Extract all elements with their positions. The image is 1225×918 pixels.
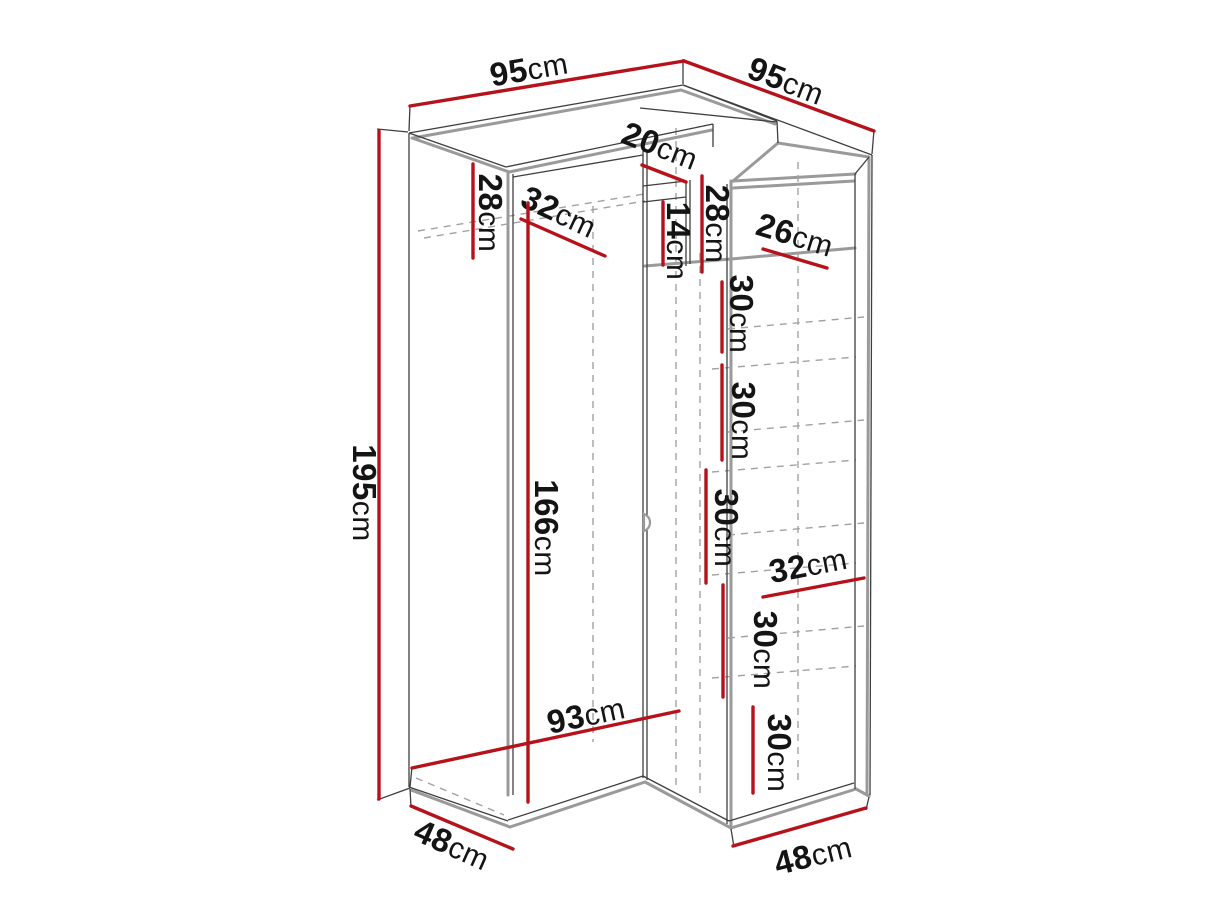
panel-edge xyxy=(778,143,869,157)
dimension-line-front-bottom-width xyxy=(412,711,679,768)
dimension-unit: cm xyxy=(525,47,571,87)
outline-edge xyxy=(643,181,686,186)
hidden-edge xyxy=(712,666,856,678)
dimension-label-front-bottom-width: 93cm xyxy=(544,688,629,741)
wardrobe-dimension-diagram: 95cm95cm195cm28cm32cm20cm14cm28cm26cm30c… xyxy=(0,0,1225,918)
diagram-canvas: 95cm95cm195cm28cm32cm20cm14cm28cm26cm30c… xyxy=(0,0,1225,918)
dimension-unit: cm xyxy=(808,831,856,873)
door-handle xyxy=(644,514,650,531)
dimension-label-door-height: 166cm xyxy=(528,479,565,577)
outline-edge xyxy=(855,157,869,174)
hidden-edge xyxy=(728,523,864,535)
dimension-label-total-height: 195cm xyxy=(346,444,383,542)
dimension-unit: cm xyxy=(804,543,851,583)
panel-edge xyxy=(645,782,731,828)
panel-edge xyxy=(733,181,854,188)
dimension-label-right-top-compartment-height: 28cm xyxy=(699,185,736,264)
dimension-unit: cm xyxy=(346,501,379,542)
dimension-label-left-depth: 48cm xyxy=(409,812,496,878)
outline-edge xyxy=(410,789,411,807)
panel-edge xyxy=(731,789,856,828)
outline-edge xyxy=(870,155,872,795)
dimension-value: 30 xyxy=(761,714,798,752)
panel-edge xyxy=(510,782,645,827)
panel-edge xyxy=(733,174,855,181)
outline-edge xyxy=(377,788,410,800)
outline-edge xyxy=(640,108,777,122)
dimension-label-right-depth: 48cm xyxy=(770,827,855,882)
dimension-annotations: 95cm95cm195cm28cm32cm20cm14cm28cm26cm30c… xyxy=(346,43,874,882)
dimension-unit: cm xyxy=(581,692,628,733)
panel-edge xyxy=(733,143,778,181)
dimension-unit: cm xyxy=(660,239,693,280)
dimension-unit: cm xyxy=(472,211,505,252)
outline-edge xyxy=(872,130,874,154)
dimension-label-corner-niche-height: 14cm xyxy=(660,202,697,281)
dimension-value: 30 xyxy=(708,489,745,527)
outline-edge xyxy=(410,767,412,787)
dimension-unit: cm xyxy=(528,536,561,577)
dimension-label-corner-front-width: 20cm xyxy=(617,114,704,177)
dimension-label-shelf-spacing-5: 30cm xyxy=(761,714,798,793)
outline-edge xyxy=(777,121,778,143)
dimension-label-top-width-right: 95cm xyxy=(743,49,830,112)
dimension-label-shelf-spacing-1: 30cm xyxy=(723,275,760,354)
hidden-edge xyxy=(712,460,856,472)
dimension-value: 14 xyxy=(660,202,697,240)
dimension-unit: cm xyxy=(699,222,732,263)
panel-edge xyxy=(681,90,775,124)
dimension-value: 30 xyxy=(723,275,760,313)
panel-edge xyxy=(412,138,509,172)
outline-edge xyxy=(409,133,506,167)
outline-edge xyxy=(643,776,729,821)
outline-edge xyxy=(377,129,408,132)
dimension-unit: cm xyxy=(761,751,794,792)
dimension-value: 30 xyxy=(747,611,784,649)
dimension-unit: cm xyxy=(723,312,756,353)
dimension-value: 28 xyxy=(472,174,509,212)
hidden-edge xyxy=(712,357,856,369)
dimension-label-shelf-spacing-3: 30cm xyxy=(708,489,745,568)
dimension-value: 95 xyxy=(487,51,531,94)
dimension-label-top-width-left: 95cm xyxy=(487,43,571,93)
dimension-unit: cm xyxy=(747,648,780,689)
outline-edge xyxy=(409,105,410,131)
dimension-value: 195 xyxy=(346,444,383,501)
dimension-label-left-top-compartment-height: 28cm xyxy=(472,174,509,253)
dimension-value: 30 xyxy=(725,382,762,420)
dimension-value: 28 xyxy=(699,185,736,223)
dimension-unit: cm xyxy=(708,526,741,567)
dimension-label-shelf-spacing-4: 30cm xyxy=(747,611,784,690)
dimension-unit: cm xyxy=(725,419,758,460)
dimension-label-shelf-spacing-2: 30cm xyxy=(725,382,762,461)
panel-edge xyxy=(867,159,869,794)
dimension-value: 166 xyxy=(528,479,565,536)
